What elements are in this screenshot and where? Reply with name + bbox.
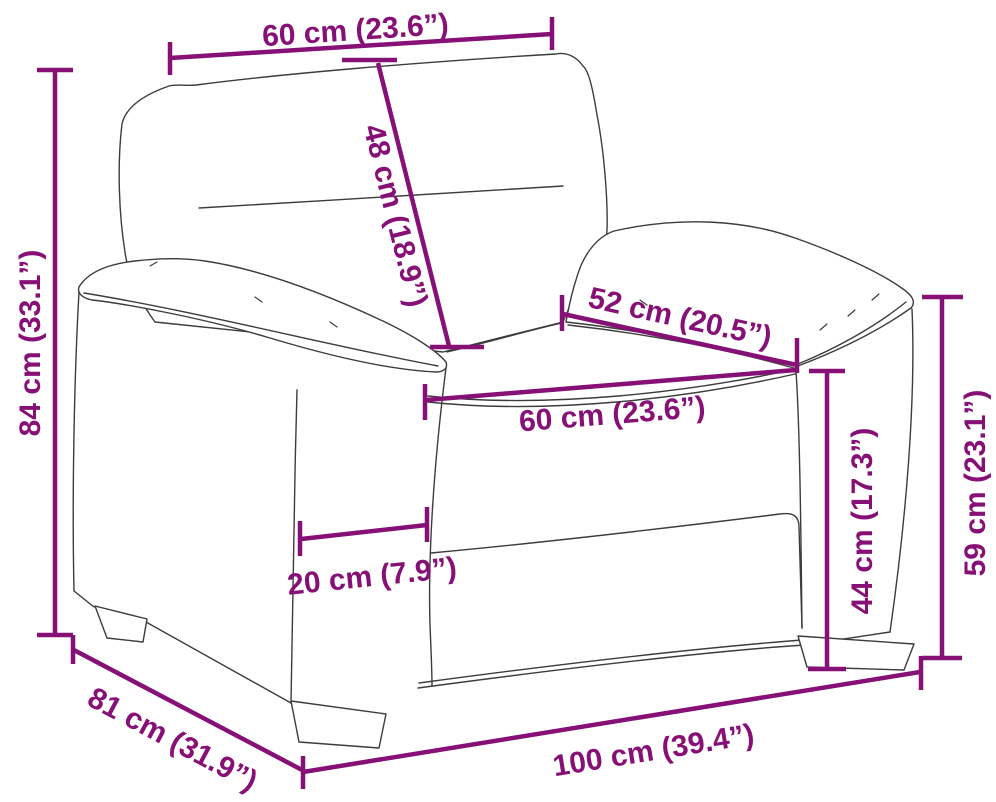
dimension-armrest-width: 20 cm (7.9”) [286,507,459,602]
dimension-seat-height: 44 cm (17.3”) [808,371,879,669]
base-bottom-edge-inner [419,640,802,683]
dimension-label-seat-height: 44 cm (17.3”) [846,428,879,615]
base-bottom-edge-outer [418,645,804,688]
front-right-leg [798,636,914,670]
back-left-leg [95,606,147,642]
dimension-total-width: 100 cm (39.4”) [303,656,921,783]
left-body-bottom-edge [146,622,291,703]
left-body-outer-edge [73,292,94,607]
front-left-leg [291,701,386,748]
right-body-outer-edge [890,309,913,632]
armchair-drawing [73,53,914,748]
dimension-armrest-height: 59 cm (23.1”) [922,297,992,658]
dimension-depth: 81 cm (31.9”) [72,649,304,798]
front-left-corner-edge [291,390,297,703]
dimension-label-backrest-width: 60 cm (23.6”) [261,8,450,53]
armchair-dimension-diagram: 60 cm (23.6”) 48 cm (18.9”) 52 cm (20.5”… [0,0,996,802]
dimension-label-depth: 81 cm (31.9”) [82,681,262,798]
dimension-label-total-height: 84 cm (33.1”) [14,250,47,437]
dimension-label-armrest-height: 59 cm (23.1”) [959,390,992,577]
seat-inner-right-edge [796,371,802,628]
diagram-canvas: 60 cm (23.6”) 48 cm (18.9”) 52 cm (20.5”… [0,0,996,802]
dimension-total-height: 84 cm (33.1”) [14,70,73,664]
dimension-label-armrest-width: 20 cm (7.9”) [286,551,459,602]
seat-front-seam [431,514,802,628]
left-armrest-front-edge [430,368,446,686]
dimension-label-seat-width: 60 cm (23.6”) [518,391,707,439]
